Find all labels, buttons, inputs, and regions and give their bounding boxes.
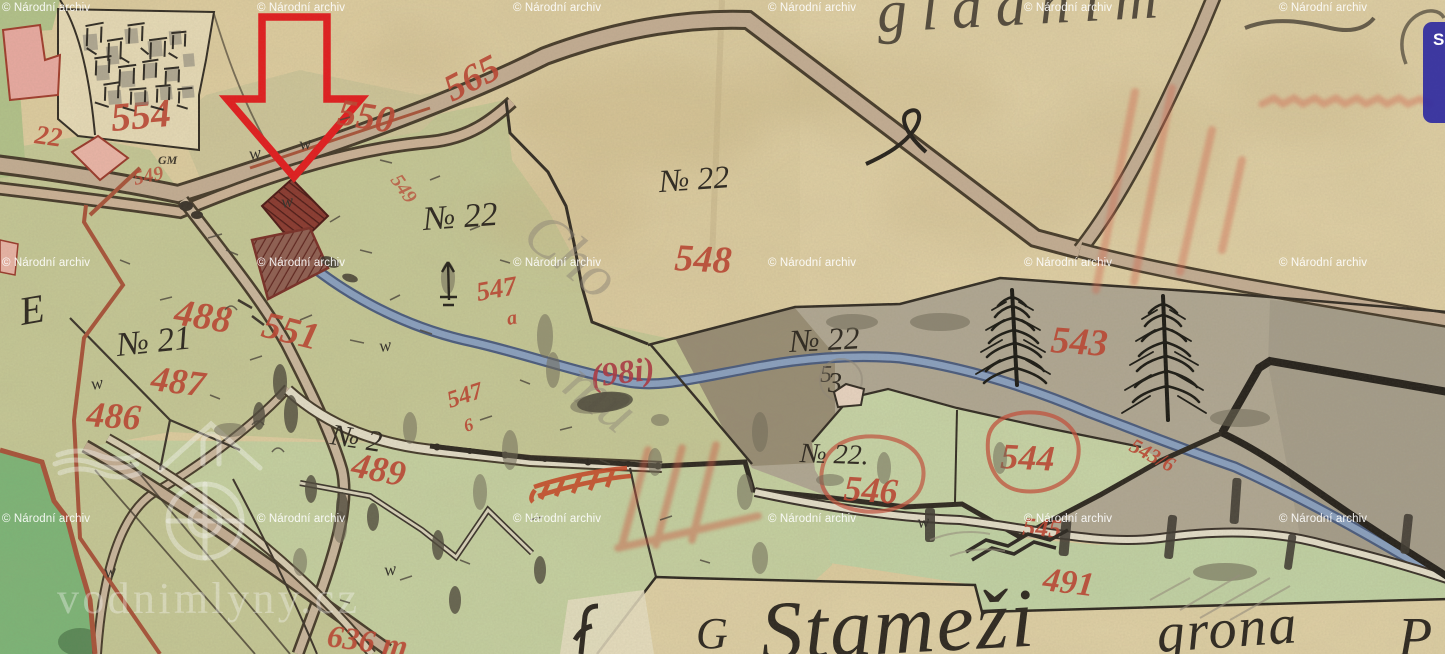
svg-text:© Národní archiv: © Národní archiv	[2, 2, 90, 14]
svg-text:© Národní archiv: © Národní archiv	[768, 257, 856, 269]
svg-text:© Národní archiv: © Národní archiv	[513, 257, 601, 269]
svg-text:© Národní archiv: © Národní archiv	[1024, 257, 1112, 269]
svg-text:© Národní archiv: © Národní archiv	[768, 2, 856, 14]
svg-text:S: S	[1433, 30, 1444, 49]
svg-text:© Národní archiv: © Národní archiv	[257, 513, 345, 525]
svg-text:© Národní archiv: © Národní archiv	[768, 513, 856, 525]
svg-text:© Národní archiv: © Národní archiv	[1279, 513, 1367, 525]
svg-text:© Národní archiv: © Národní archiv	[1024, 513, 1112, 525]
svg-text:© Národní archiv: © Národní archiv	[2, 513, 90, 525]
svg-text:© Národní archiv: © Národní archiv	[2, 257, 90, 269]
svg-text:© Národní archiv: © Národní archiv	[1024, 2, 1112, 14]
svg-text:© Národní archiv: © Národní archiv	[1279, 2, 1367, 14]
svg-text:© Národní archiv: © Národní archiv	[513, 2, 601, 14]
svg-text:© Národní archiv: © Národní archiv	[257, 2, 345, 14]
svg-text:© Národní archiv: © Národní archiv	[257, 257, 345, 269]
svg-text:© Národní archiv: © Národní archiv	[1279, 257, 1367, 269]
svg-text:© Národní archiv: © Národní archiv	[513, 513, 601, 525]
